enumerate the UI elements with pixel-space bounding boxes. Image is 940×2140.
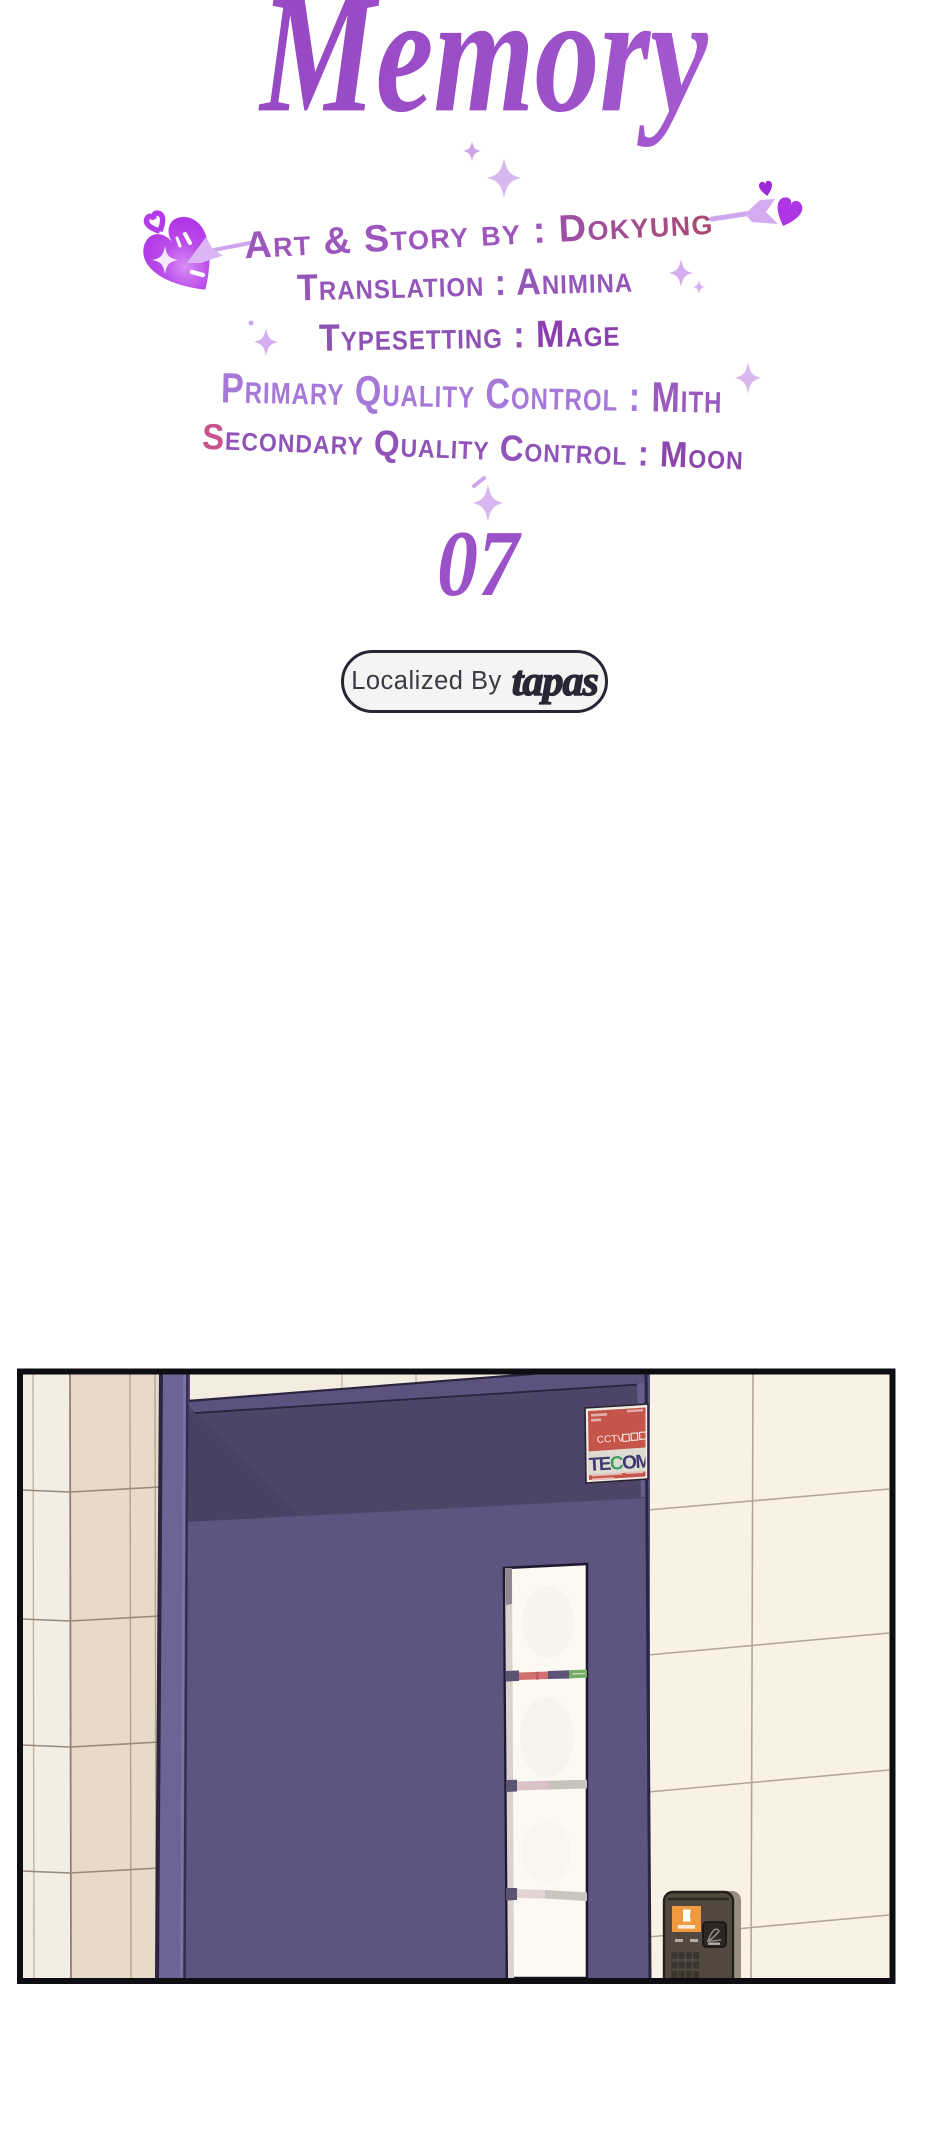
svg-text:CCTV: CCTV xyxy=(597,1433,625,1446)
